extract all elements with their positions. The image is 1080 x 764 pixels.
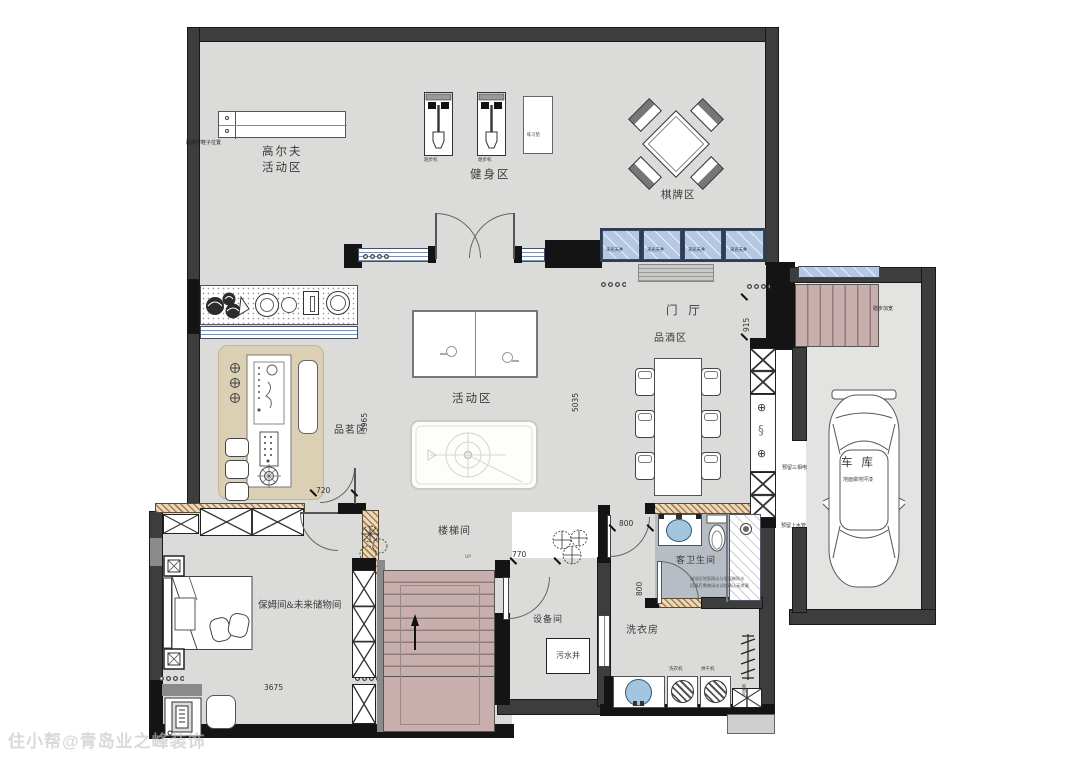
tea-door-leaf <box>354 468 356 504</box>
shower-drain <box>743 526 749 532</box>
bath-basin <box>666 519 692 542</box>
wall-stair-equip-a <box>495 560 510 578</box>
vase-icon <box>303 291 319 315</box>
equip-window <box>598 615 610 667</box>
dryer-machine <box>700 676 731 708</box>
sill-coil <box>746 283 770 290</box>
shower-divider <box>726 514 728 602</box>
dim-bath-height: 800 <box>636 582 644 596</box>
equipment-label: 设备间 <box>533 615 563 624</box>
clock-icon <box>326 291 350 315</box>
golf-rack-knob <box>225 129 229 133</box>
chess-label: 棋牌区 <box>661 191 696 202</box>
paddle-handle <box>440 353 447 355</box>
bed <box>163 576 253 650</box>
laundry-xbox <box>732 688 762 708</box>
wall-bath-top-hatch <box>653 503 761 514</box>
dim-equip-door: 770 <box>512 551 526 559</box>
wall-garage-right <box>922 268 935 624</box>
nanny-label: 保姆间&未来储物间 <box>258 602 341 612</box>
nightstand <box>163 648 185 670</box>
window <box>520 248 545 262</box>
chair <box>206 695 236 729</box>
tea-bench <box>298 360 318 434</box>
dining-table <box>654 358 702 496</box>
sill-coil <box>600 281 626 288</box>
car-icon <box>823 386 905 592</box>
skylight-label: 采光天井 <box>688 248 705 252</box>
garage-stairs <box>795 284 879 347</box>
bath-note1: 淋浴区地面周边与墙面做防水 <box>690 577 744 581</box>
equip-door-leaf <box>503 577 509 620</box>
dining-chair <box>701 410 721 438</box>
treadmill-label: 跑步机 <box>478 158 492 163</box>
garage-stair-note: 踏步加宽 <box>873 307 893 312</box>
plant-icon <box>548 526 592 568</box>
sill-coil <box>158 675 184 682</box>
wall-stair-equip-b <box>495 613 510 705</box>
dining-chair <box>635 368 655 396</box>
skylight-frame <box>600 228 766 262</box>
laundry-label: 洗衣房 <box>626 626 659 636</box>
dryer-label: 烘干机 <box>701 667 715 672</box>
washing-machine <box>667 676 698 708</box>
dim-foyer-height: 915 <box>743 318 751 332</box>
billiard-table <box>410 420 538 490</box>
guest-bath-label: 客卫生间 <box>676 556 716 565</box>
laundry-tap <box>633 701 637 706</box>
laundry-wall-stub <box>604 676 613 706</box>
bath-counter-mark <box>696 514 701 519</box>
chess-chair <box>690 156 724 190</box>
laundry-tap <box>640 701 644 706</box>
wall-garage-left-b <box>793 528 806 612</box>
golf-rack-midline <box>219 125 347 126</box>
sewage-well-box: 污水井 <box>546 638 590 674</box>
watermark: 住小帮@青岛业之峰装饰 <box>8 727 206 752</box>
tea-stool <box>225 438 249 457</box>
dim-bath-width: 800 <box>619 520 633 528</box>
stair-hall-label: 楼梯间 <box>438 527 471 537</box>
valve-symbol: ⊕ <box>757 402 766 413</box>
bath-door-leaf <box>657 561 662 604</box>
wall-pier <box>545 240 602 268</box>
wardrobe <box>200 508 304 536</box>
treadmill-label: 跑步机 <box>424 158 438 163</box>
skylight-label: 采光天井 <box>647 248 664 252</box>
floor-plan: 采光天井 采光天井 采光天井 采光天井 <box>0 0 1080 764</box>
wine-label: 品酒区 <box>654 334 687 344</box>
dining-chair <box>635 452 655 480</box>
cabinet-xbox <box>352 684 376 724</box>
chess-chair <box>628 156 662 190</box>
golf-area-label-line1: 高尔夫 <box>262 147 303 159</box>
skylight-pane <box>684 230 722 260</box>
garage-label: 车 库 <box>841 458 876 470</box>
garage-power-note: 预留三相电 <box>782 466 807 471</box>
garage-stair-window <box>798 266 880 278</box>
bath-counter-mark <box>659 514 664 519</box>
clock-inner <box>330 295 346 311</box>
stairs-up-arrow-stem <box>414 624 416 650</box>
toilet-icon <box>706 514 728 556</box>
corridor-door-leaf <box>607 515 611 558</box>
cabinet-xbox <box>750 472 776 518</box>
golf-rack <box>218 111 346 138</box>
tea-stool <box>225 482 249 501</box>
cabinet-cap <box>750 338 776 348</box>
paddle-icon <box>446 346 457 357</box>
chess-chair <box>690 98 724 132</box>
chess-chair <box>628 98 662 132</box>
golf-rack-knob <box>225 116 229 120</box>
wall-garage-bottom <box>790 610 935 624</box>
tea-stool <box>225 460 249 479</box>
washer-label: 洗衣机 <box>669 667 683 672</box>
garage-floor-note: 地面做地坪漆 <box>843 478 873 483</box>
wall-left-mid-cap <box>188 280 199 334</box>
sill-coil <box>362 253 390 260</box>
dining-chair <box>701 368 721 396</box>
paddle-handle <box>512 360 519 362</box>
skylight-sill <box>638 264 714 282</box>
drying-rack-label: 晾晒区 <box>742 684 746 696</box>
treadmill-icon <box>424 92 453 156</box>
dim-nanny-width: 3675 <box>264 684 283 692</box>
laundry-sink <box>625 679 652 706</box>
faucet-icon <box>676 513 682 519</box>
golf-area-label-line2: 活动区 <box>262 163 303 175</box>
cabinet-xbox <box>750 348 776 394</box>
drying-rack-icon <box>738 632 758 682</box>
double-door-leaf-left <box>435 213 437 259</box>
plate-icon <box>255 293 279 317</box>
plate-icon <box>281 297 297 313</box>
garage-water-note: 预留上水管 <box>781 524 806 529</box>
skylight-pane <box>725 230 764 260</box>
foyer-label: 门 厅 <box>666 306 704 318</box>
exercise-mat <box>523 96 553 154</box>
skylight-label: 采光天井 <box>606 248 623 252</box>
electric-shoe-note: 配电房鞋子位置 <box>186 141 221 146</box>
wall-garage-left-a <box>793 348 806 440</box>
dining-chair <box>635 410 655 438</box>
cabinet-xbox <box>352 570 376 678</box>
nanny-door-leaf <box>300 512 338 514</box>
skylight-label: 采光天井 <box>730 248 747 252</box>
cabinet-cap <box>352 558 376 570</box>
valve-symbol: ⊕ <box>757 448 766 459</box>
dining-chair <box>701 452 721 480</box>
wall-equip-bottom <box>498 700 614 714</box>
exterior-step <box>727 714 775 734</box>
cabinet-xbox <box>163 514 199 534</box>
nightstand <box>163 555 185 577</box>
wall-nanny-left-seg <box>150 538 162 566</box>
dim-tea-width: 720 <box>316 487 330 495</box>
tea-table <box>246 354 292 488</box>
wall-top <box>188 28 778 41</box>
gym-label: 健身区 <box>470 170 511 182</box>
pingpong-table <box>412 310 538 378</box>
double-door-leaf-right <box>513 213 515 259</box>
window <box>200 326 358 339</box>
pingpong-net <box>475 312 476 376</box>
wall-laundry-right <box>760 505 774 717</box>
door-jamb <box>514 246 522 263</box>
wall-right-hall <box>766 28 778 264</box>
tea-label: 品茗区 <box>334 426 367 436</box>
wall-seg <box>162 684 202 696</box>
trap-symbol: § <box>758 424 764 436</box>
wall-bath-top-cap <box>645 503 655 514</box>
dim-activity-height: 5035 <box>572 393 580 412</box>
chess-table-set <box>630 98 722 190</box>
activity-label: 活动区 <box>452 394 493 406</box>
treadmill-icon <box>477 92 506 156</box>
main-stairs-inner <box>400 585 480 725</box>
skylight-pane <box>643 230 681 260</box>
rockery-icon <box>203 289 253 322</box>
mat-label: 练习垫 <box>527 133 540 137</box>
bath-note2: 回填后需做闭水试验确认无渗漏 <box>690 584 749 588</box>
stairs-up-label: UP <box>465 556 471 561</box>
wall-left-upper <box>188 28 199 280</box>
sewage-well-label: 污水井 <box>556 652 580 660</box>
skylight-pane <box>602 230 640 260</box>
plate-inner <box>260 298 274 312</box>
tea-knobs <box>228 362 242 406</box>
